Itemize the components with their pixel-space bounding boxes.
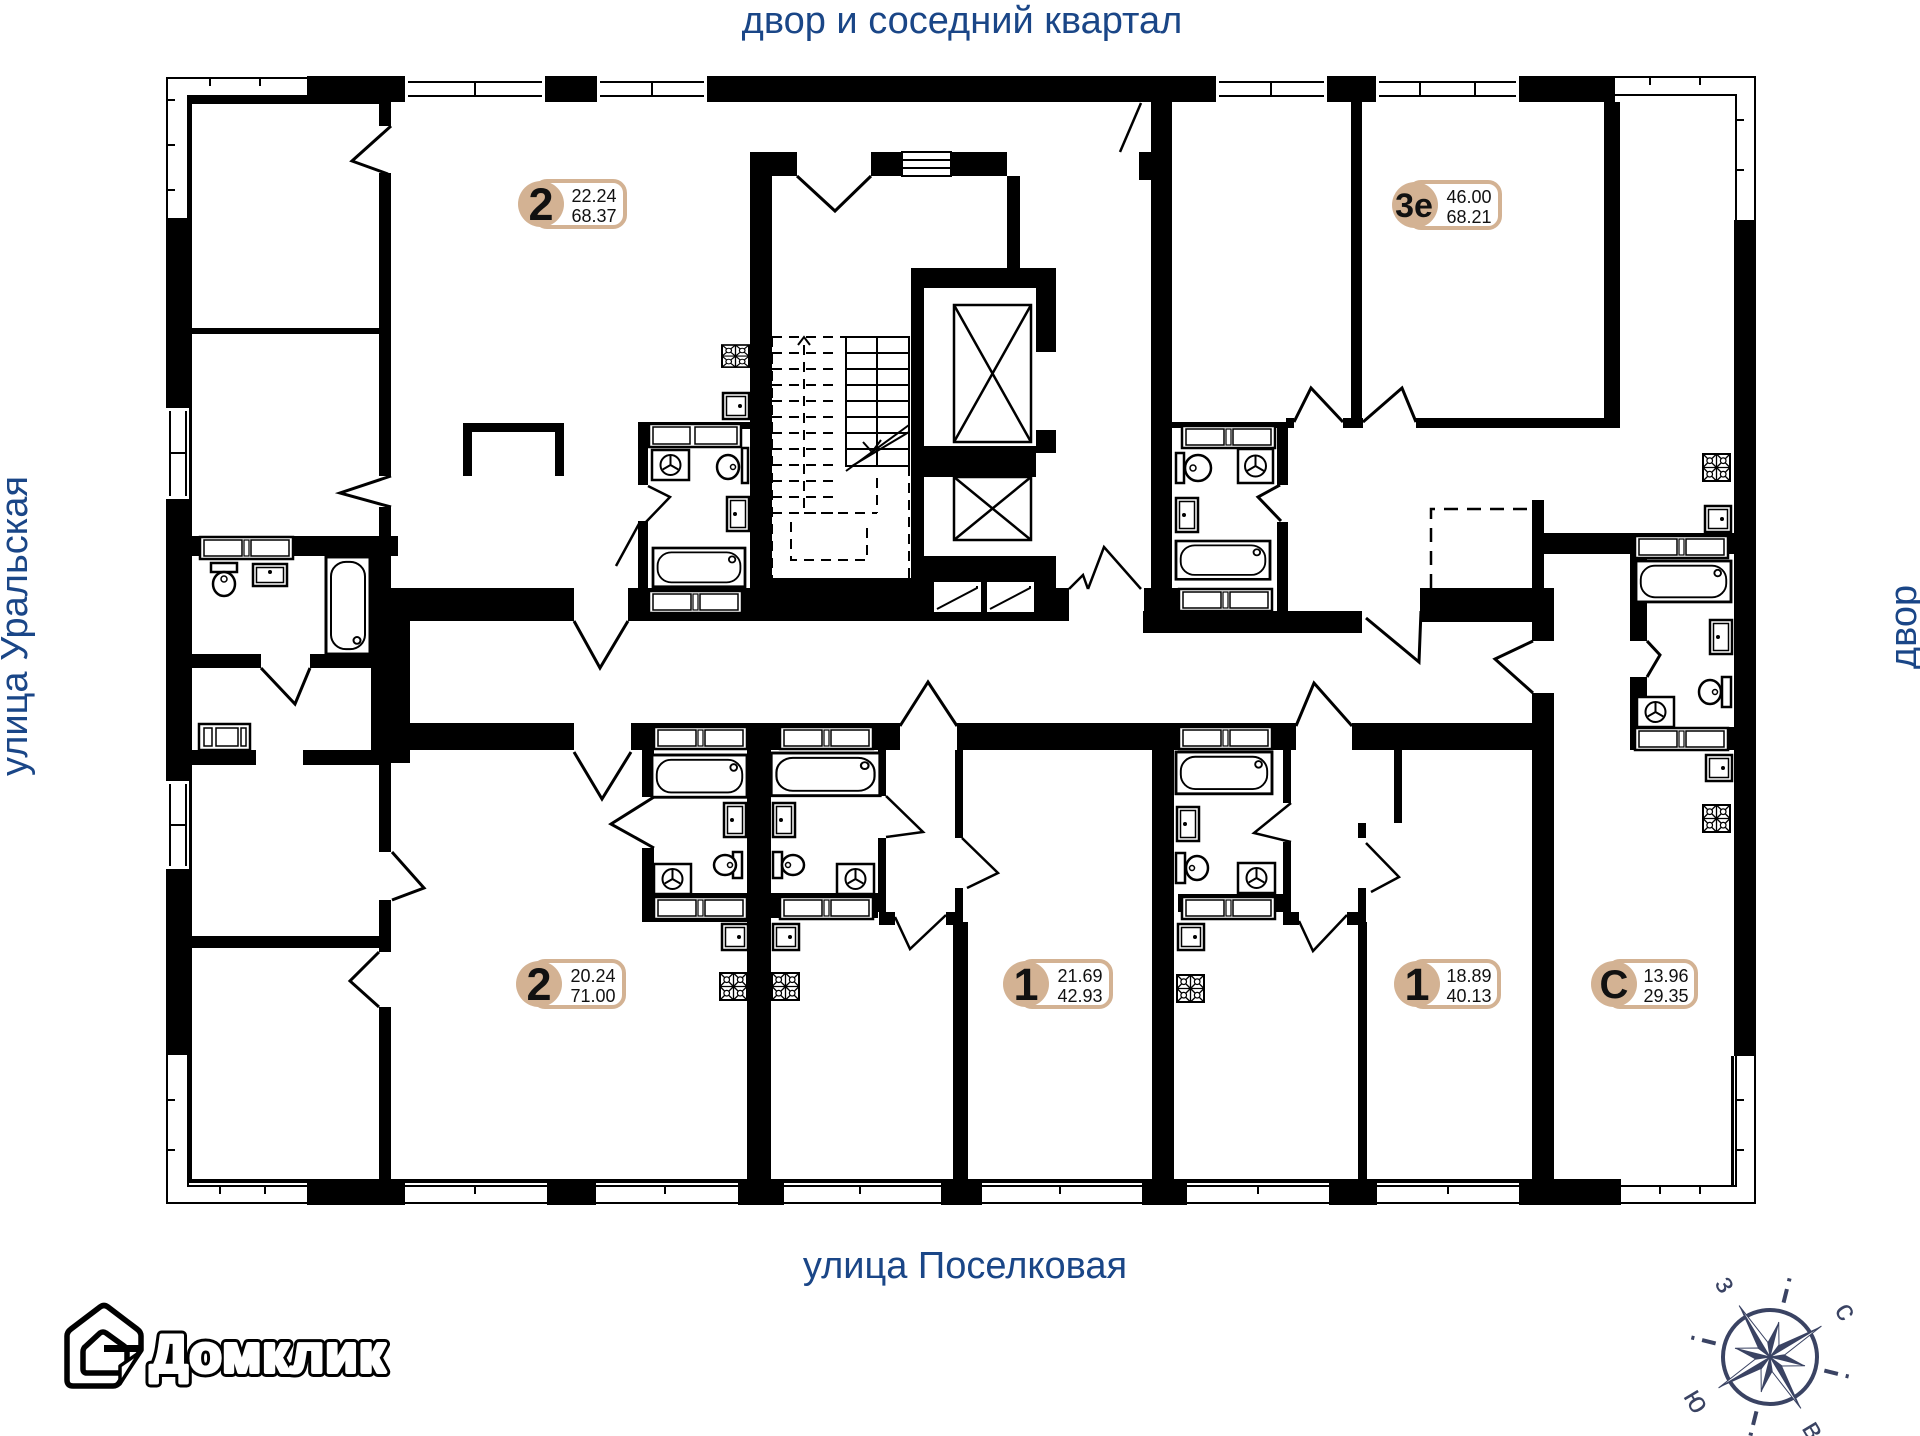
svg-text:2: 2 bbox=[528, 179, 553, 230]
svg-text:улица Поселковая: улица Поселковая bbox=[803, 1245, 1127, 1287]
svg-text:20.24: 20.24 bbox=[570, 966, 615, 986]
svg-text:1: 1 bbox=[1013, 959, 1038, 1010]
svg-text:21.69: 21.69 bbox=[1057, 966, 1102, 986]
svg-text:18.89: 18.89 bbox=[1446, 966, 1491, 986]
svg-text:С: С bbox=[1600, 963, 1629, 1007]
svg-text:улица Уральская: улица Уральская bbox=[0, 476, 36, 776]
svg-text:13.96: 13.96 bbox=[1643, 966, 1688, 986]
svg-text:68.21: 68.21 bbox=[1446, 207, 1491, 227]
svg-text:42.93: 42.93 bbox=[1057, 986, 1102, 1006]
svg-text:71.00: 71.00 bbox=[570, 986, 615, 1006]
svg-text:22.24: 22.24 bbox=[571, 186, 616, 206]
svg-text:68.37: 68.37 bbox=[571, 206, 616, 226]
svg-text:40.13: 40.13 bbox=[1446, 986, 1491, 1006]
svg-text:Домклик: Домклик bbox=[150, 1325, 386, 1384]
svg-text:двор и соседний квартал: двор и соседний квартал bbox=[742, 0, 1183, 42]
svg-text:3е: 3е bbox=[1395, 187, 1433, 225]
svg-text:46.00: 46.00 bbox=[1446, 187, 1491, 207]
svg-text:2: 2 bbox=[526, 959, 551, 1010]
svg-text:1: 1 bbox=[1404, 959, 1429, 1010]
svg-text:29.35: 29.35 bbox=[1643, 986, 1688, 1006]
svg-text:двор: двор bbox=[1883, 585, 1920, 669]
